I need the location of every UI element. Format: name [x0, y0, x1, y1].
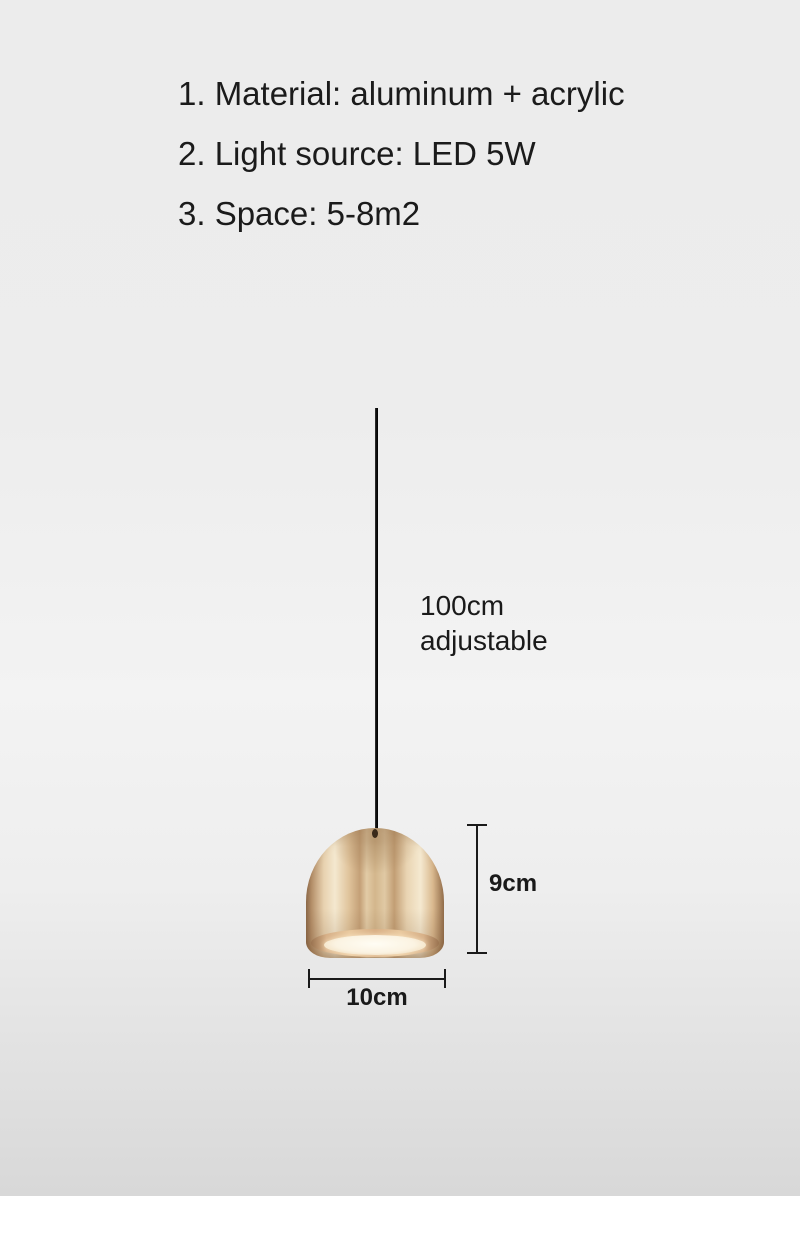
height-dimension-cap-bottom [467, 952, 487, 954]
cord-hole [372, 829, 378, 838]
pendant-lamp [306, 828, 444, 958]
height-dimension-line [476, 825, 478, 954]
height-dimension-cap-top [467, 824, 487, 826]
height-dimension-label: 9cm [489, 870, 537, 898]
spec-item-material: 1. Material: aluminum + acrylic [178, 64, 625, 124]
spec-item-light-source: 2. Light source: LED 5W [178, 124, 625, 184]
product-photo-background: 1. Material: aluminum + acrylic 2. Light… [0, 0, 800, 1196]
pendant-cord [375, 408, 378, 838]
footer-white-strip [0, 1196, 800, 1238]
cord-length-label: 100cm adjustable [420, 588, 548, 658]
width-dimension-label: 10cm [309, 984, 445, 1012]
lamp-diffuser [324, 935, 426, 955]
spec-list: 1. Material: aluminum + acrylic 2. Light… [178, 64, 625, 244]
cord-length-value: 100cm [420, 588, 548, 623]
spec-item-space: 3. Space: 5-8m2 [178, 184, 625, 244]
cord-length-note: adjustable [420, 623, 548, 658]
width-dimension-line [309, 978, 445, 980]
